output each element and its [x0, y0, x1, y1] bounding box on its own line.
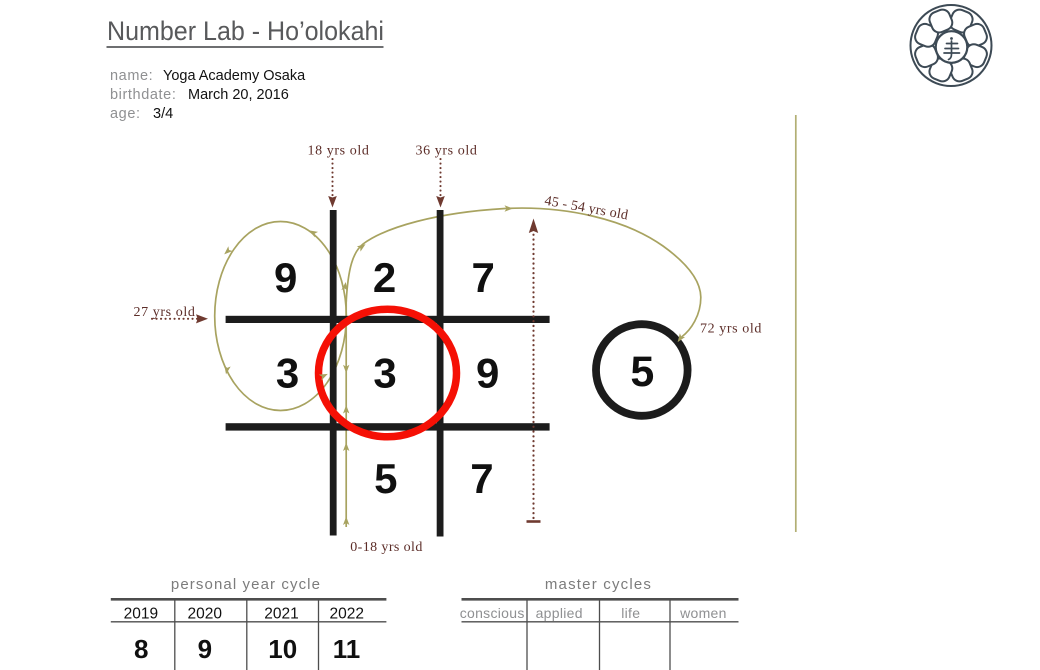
svg-text:name:: name: [110, 68, 153, 84]
svg-text:women: women [679, 605, 727, 621]
svg-text:2021: 2021 [264, 606, 298, 623]
svg-text:8: 8 [134, 634, 148, 664]
svg-text:5: 5 [630, 348, 654, 396]
svg-text:3: 3 [276, 350, 299, 397]
svg-text:27 yrs old: 27 yrs old [134, 305, 196, 320]
svg-text:7: 7 [470, 455, 493, 502]
svg-text:master cycles: master cycles [545, 576, 652, 593]
svg-text:March 20, 2016: March 20, 2016 [188, 87, 289, 103]
svg-text:birthdate:: birthdate: [110, 87, 176, 103]
svg-text:Yoga Academy Osaka: Yoga Academy Osaka [163, 68, 306, 84]
svg-text:18 yrs old: 18 yrs old [308, 144, 370, 159]
svg-text:2020: 2020 [188, 606, 223, 623]
svg-text:36 yrs old: 36 yrs old [416, 144, 478, 159]
svg-text:3: 3 [373, 350, 396, 397]
svg-text:0-18 yrs old: 0-18 yrs old [350, 540, 422, 555]
svg-text:10: 10 [268, 634, 297, 664]
svg-text:applied: applied [536, 605, 583, 621]
svg-text:2: 2 [373, 254, 396, 301]
svg-text:2019: 2019 [124, 606, 158, 623]
svg-text:Number Lab - Ho’olokahi: Number Lab - Ho’olokahi [107, 16, 384, 46]
svg-text:72 yrs old: 72 yrs old [700, 322, 762, 337]
svg-text:age:: age: [110, 106, 141, 122]
svg-text:9: 9 [476, 350, 499, 397]
svg-text:3/4: 3/4 [153, 106, 173, 122]
svg-text:conscious: conscious [460, 605, 525, 621]
svg-text:9: 9 [274, 254, 297, 301]
svg-text:11: 11 [333, 634, 361, 664]
svg-text:life: life [621, 605, 640, 621]
svg-text:2022: 2022 [330, 606, 364, 623]
svg-text:5: 5 [374, 455, 397, 502]
svg-text:9: 9 [198, 634, 212, 664]
svg-text:personal year cycle: personal year cycle [171, 576, 321, 593]
svg-text:7: 7 [472, 254, 495, 301]
